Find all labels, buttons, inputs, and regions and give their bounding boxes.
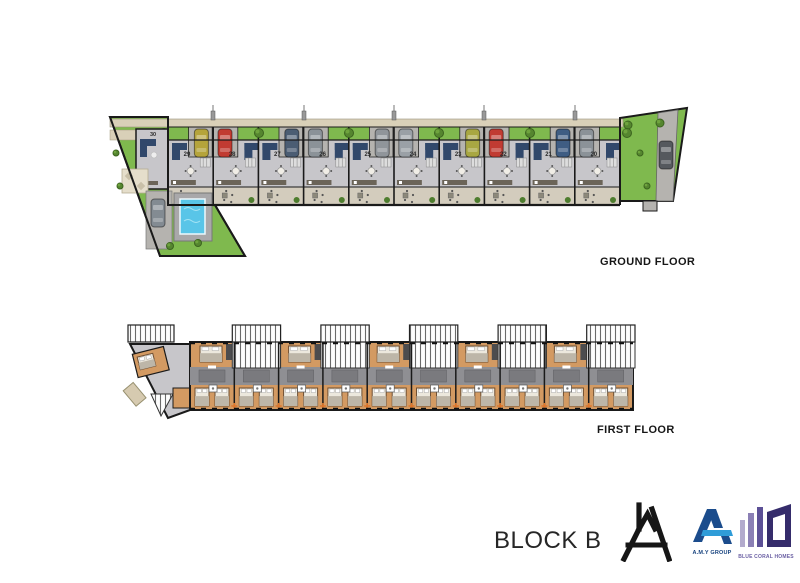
ground-unit-25: 25 xyxy=(349,127,395,205)
ground-unit-22: 22 xyxy=(483,127,530,205)
svg-text:29: 29 xyxy=(184,152,191,158)
right-garden xyxy=(620,108,687,211)
svg-text:22: 22 xyxy=(500,152,507,158)
tree-icon xyxy=(623,129,632,138)
tree-icon xyxy=(255,129,264,138)
svg-text:23: 23 xyxy=(455,152,462,158)
amy-group-icon xyxy=(690,506,734,548)
roof-hatch xyxy=(321,325,369,342)
svg-text:21: 21 xyxy=(545,152,552,158)
tree-icon xyxy=(345,129,354,138)
car-icon xyxy=(151,199,165,227)
tree-icon xyxy=(637,150,643,156)
car-icon xyxy=(194,129,208,157)
roof-hatch xyxy=(410,325,458,342)
ground-unit-28: 28 xyxy=(212,127,259,205)
car-icon xyxy=(466,129,480,157)
lamp-post-icon xyxy=(392,105,396,120)
first-floor-wedge xyxy=(123,344,190,418)
pool xyxy=(174,193,212,241)
svg-text:25: 25 xyxy=(364,152,371,158)
amy-group-label: A.M.Y GROUP xyxy=(692,550,731,556)
tree-icon xyxy=(656,119,664,127)
house-strip: 29282726252423222120 xyxy=(168,127,621,205)
blue-coral-icon xyxy=(737,502,795,552)
ground-unit-23: 23 xyxy=(439,127,485,205)
tree-icon xyxy=(624,121,632,129)
blue-coral-logo: BLUE CORAL HOMES xyxy=(737,502,795,560)
svg-text:20: 20 xyxy=(590,152,597,158)
ground-unit-21: 21 xyxy=(530,127,576,205)
tree-icon xyxy=(435,129,444,138)
svg-text:26: 26 xyxy=(319,152,326,158)
tree-icon xyxy=(113,150,119,156)
car-icon xyxy=(375,129,389,157)
svg-text:24: 24 xyxy=(410,152,417,158)
walkway xyxy=(110,119,623,127)
roof-hatch xyxy=(232,325,280,342)
ground-unit-26: 26 xyxy=(303,127,350,205)
roof-hatch xyxy=(498,325,546,342)
roof-hatch xyxy=(128,325,174,342)
ground-unit-20: 20 xyxy=(574,127,621,205)
tree-icon xyxy=(526,129,535,138)
ground-unit-27: 27 xyxy=(258,127,304,205)
lamp-post-icon xyxy=(302,105,306,120)
architect-monogram-icon xyxy=(618,502,672,562)
lamp-post-icon xyxy=(482,105,486,120)
blue-coral-label: BLUE CORAL HOMES xyxy=(738,554,794,560)
ground-unit-24: 24 xyxy=(393,127,440,205)
svg-text:30: 30 xyxy=(150,132,156,138)
lamp-post-icon xyxy=(211,105,215,120)
block-title: BLOCK B xyxy=(494,527,602,555)
svg-text:27: 27 xyxy=(274,152,281,158)
tree-icon xyxy=(644,183,650,189)
svg-text:28: 28 xyxy=(229,152,236,158)
car-icon xyxy=(659,141,673,169)
tree-icon xyxy=(195,240,202,247)
ground-floor-label: GROUND FLOOR xyxy=(600,256,695,268)
first-floor-label: FIRST FLOOR xyxy=(597,424,675,436)
lamp-post-icon xyxy=(573,105,577,120)
plan-sheet: { "ground_floor": { "label": "GROUND FLO… xyxy=(0,0,800,583)
car-icon xyxy=(285,129,299,157)
ground-floor-plan: 2928272625242322212030 xyxy=(100,93,700,261)
tree-icon xyxy=(167,243,174,250)
car-icon xyxy=(556,129,570,157)
tree-icon xyxy=(117,183,123,189)
roof-hatch xyxy=(587,325,635,342)
amy-group-logo: A.M.Y GROUP xyxy=(686,506,738,556)
first-floor-plan xyxy=(113,318,643,426)
wedge-balcony xyxy=(123,382,146,406)
